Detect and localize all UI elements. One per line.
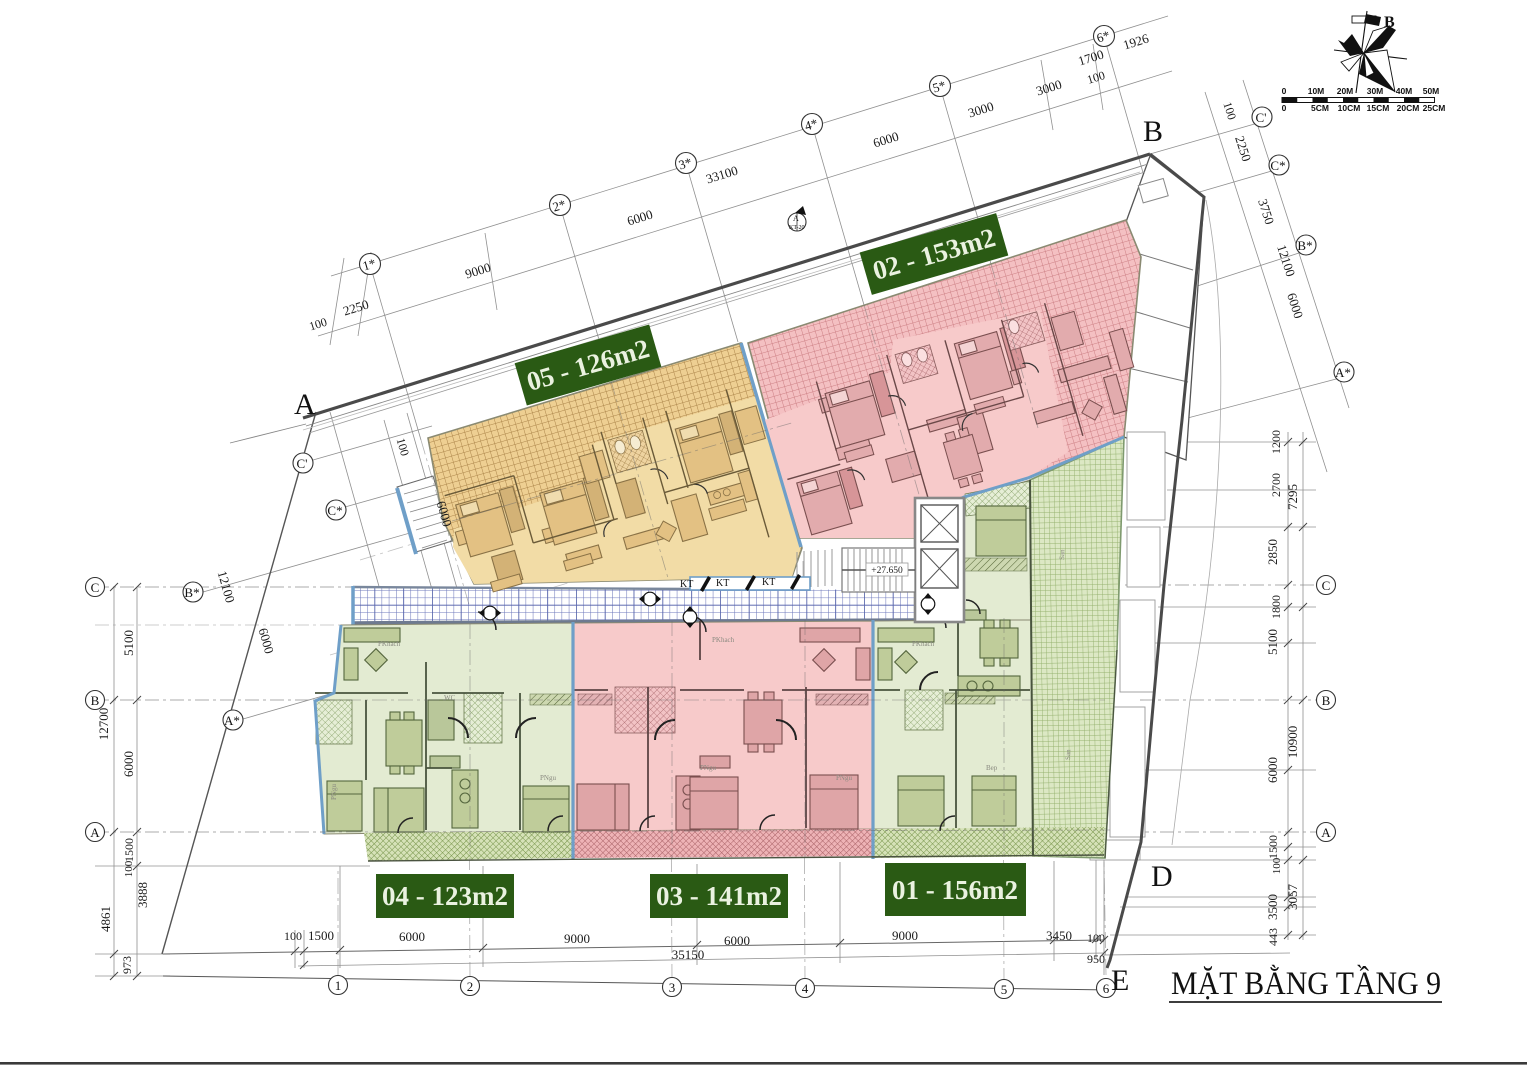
svg-text:3450: 3450 [1046, 928, 1072, 943]
svg-text:D: D [1151, 860, 1173, 893]
svg-text:04 - 123m2: 04 - 123m2 [382, 881, 508, 911]
svg-text:C*: C* [1270, 158, 1285, 173]
svg-text:3500: 3500 [1265, 894, 1280, 920]
svg-text:San: San [1064, 749, 1072, 760]
svg-text:2700: 2700 [1269, 473, 1283, 497]
svg-text:2: 2 [467, 979, 474, 994]
svg-text:KT: KT [762, 577, 775, 588]
svg-text:3: 3 [669, 980, 676, 995]
svg-text:5100: 5100 [1265, 629, 1280, 655]
svg-text:973: 973 [120, 956, 134, 974]
svg-text:C: C [91, 580, 100, 595]
svg-text:A: A [1321, 825, 1331, 840]
svg-text:9000: 9000 [892, 928, 918, 943]
svg-text:20M: 20M [1337, 86, 1354, 96]
svg-text:1500: 1500 [1266, 835, 1280, 859]
svg-text:10900: 10900 [1285, 726, 1300, 759]
svg-text:50M: 50M [1423, 86, 1440, 96]
svg-text:5CM: 5CM [1311, 103, 1329, 113]
svg-text:4861: 4861 [98, 906, 113, 932]
svg-text:+27.650: +27.650 [871, 566, 903, 576]
svg-text:10M: 10M [1308, 86, 1325, 96]
svg-text:B*: B* [184, 585, 199, 600]
svg-text:San: San [1058, 549, 1066, 560]
svg-text:12700: 12700 [96, 708, 111, 741]
svg-text:B: B [1143, 115, 1163, 148]
svg-text:1800: 1800 [1269, 595, 1283, 619]
svg-text:1: 1 [335, 978, 342, 993]
svg-text:01 - 156m2: 01 - 156m2 [892, 875, 1018, 905]
svg-text:30M: 30M [1367, 86, 1384, 96]
svg-text:PNgu: PNgu [700, 764, 716, 772]
svg-text:PNgu: PNgu [836, 774, 852, 782]
svg-text:20CM: 20CM [1397, 103, 1420, 113]
svg-text:1500: 1500 [308, 928, 334, 943]
svg-text:WC: WC [444, 694, 456, 702]
svg-text:PNgu: PNgu [540, 774, 556, 782]
svg-text:100: 100 [284, 929, 302, 943]
svg-text:100: 100 [123, 860, 135, 877]
svg-text:5: 5 [1001, 982, 1008, 997]
svg-text:A: A [294, 388, 316, 421]
svg-text:KT-20: KT-20 [789, 225, 804, 231]
svg-text:6000: 6000 [1265, 757, 1280, 783]
svg-text:Bep: Bep [986, 764, 998, 772]
svg-text:KT: KT [680, 579, 693, 590]
svg-text:6000: 6000 [399, 929, 425, 944]
svg-text:KT: KT [716, 578, 729, 589]
svg-text:6000: 6000 [121, 751, 136, 777]
svg-text:25CM: 25CM [1423, 103, 1446, 113]
svg-text:B: B [91, 693, 100, 708]
svg-text:100: 100 [1087, 931, 1105, 945]
svg-text:443: 443 [1266, 928, 1280, 946]
svg-text:10CM: 10CM [1338, 103, 1361, 113]
svg-text:C': C' [1255, 110, 1266, 125]
svg-text:PKhach: PKhach [912, 640, 935, 648]
svg-text:B: B [1384, 14, 1395, 31]
svg-text:7295: 7295 [1285, 484, 1300, 510]
svg-text:35150: 35150 [672, 947, 705, 962]
svg-text:B*: B* [1297, 238, 1312, 253]
svg-text:9000: 9000 [564, 931, 590, 946]
svg-text:100: 100 [1271, 857, 1283, 874]
svg-text:3888: 3888 [135, 882, 150, 908]
svg-text:A: A [793, 214, 799, 223]
svg-text:1200: 1200 [1269, 430, 1283, 454]
svg-text:PNgu: PNgu [330, 784, 338, 800]
svg-text:B: B [1322, 693, 1331, 708]
svg-text:4: 4 [802, 981, 809, 996]
svg-text:5100: 5100 [121, 630, 136, 656]
svg-text:C: C [1322, 578, 1331, 593]
svg-text:MẶT BẰNG TẦNG 9: MẶT BẰNG TẦNG 9 [1171, 964, 1441, 1002]
svg-text:A: A [90, 825, 100, 840]
svg-text:3057: 3057 [1285, 884, 1300, 911]
svg-text:15CM: 15CM [1367, 103, 1390, 113]
svg-text:6: 6 [1103, 981, 1110, 996]
svg-text:PKhach: PKhach [712, 636, 735, 644]
svg-text:0: 0 [1282, 86, 1287, 96]
svg-text:C': C' [296, 456, 307, 471]
svg-text:1500: 1500 [122, 838, 136, 862]
svg-text:C*: C* [327, 503, 342, 518]
svg-text:03 - 141m2: 03 - 141m2 [656, 881, 782, 911]
svg-text:E: E [1111, 964, 1129, 997]
svg-text:PKhach: PKhach [378, 640, 401, 648]
svg-text:A*: A* [224, 713, 240, 728]
svg-text:A*: A* [1335, 365, 1351, 380]
svg-text:6000: 6000 [724, 933, 750, 948]
svg-text:2850: 2850 [1265, 539, 1280, 565]
svg-text:40M: 40M [1396, 86, 1413, 96]
svg-text:0: 0 [1282, 103, 1287, 113]
